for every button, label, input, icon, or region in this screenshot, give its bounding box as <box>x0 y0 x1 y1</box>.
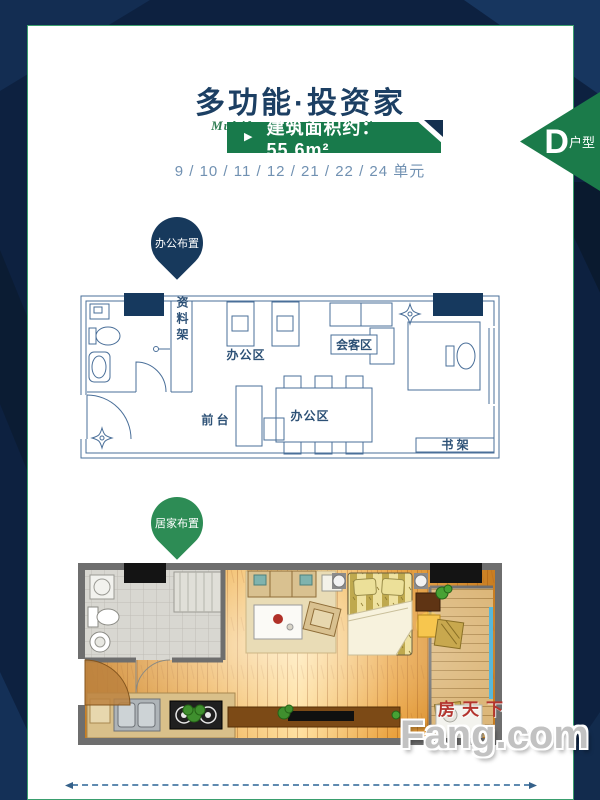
entry-door <box>87 395 131 439</box>
office-pin-label: 办公布置 <box>155 235 199 251</box>
structural-column <box>124 293 164 316</box>
office-floor-plan: 资料架 办公区 会客区 书 架 办公区 <box>78 292 502 464</box>
background-shape <box>0 640 30 800</box>
front-desk <box>236 386 284 446</box>
structural-column <box>433 293 483 316</box>
plant-icon <box>400 304 420 324</box>
files-shelf-label: 资料架 <box>175 295 189 344</box>
front-desk-label: 前 台 <box>201 412 228 427</box>
bookshelf-label: 书 架 <box>441 437 468 452</box>
dimension-line <box>72 784 530 786</box>
structural-column <box>124 563 166 583</box>
area-banner: ▶ 建筑面积约：55.6m² <box>227 122 441 153</box>
type-letter: D <box>544 125 569 159</box>
meeting-sofa <box>330 303 394 364</box>
executive-desk <box>408 322 480 390</box>
office-area-bottom-label: 办公区 <box>290 408 329 423</box>
unit-numbers: 9 / 10 / 11 / 12 / 21 / 22 / 24 单元 <box>0 160 600 181</box>
play-triangle-icon: ▶ <box>244 132 252 143</box>
home-pin-label: 居家布置 <box>155 515 199 531</box>
workstations <box>227 302 299 346</box>
office-area-top-label: 办公区 <box>226 347 265 362</box>
area-banner-text: 建筑面积约：55.6m² <box>266 114 441 161</box>
plant-icon <box>92 428 112 448</box>
meeting-area-label: 会客区 <box>336 337 372 352</box>
type-suffix: 户型 <box>569 132 595 151</box>
window <box>489 607 493 699</box>
background-shape <box>0 250 27 470</box>
structural-column <box>430 563 482 583</box>
fang-watermark-en: Fang.com <box>400 720 595 750</box>
fang-watermark: 房天下 Fang.com <box>400 695 595 750</box>
